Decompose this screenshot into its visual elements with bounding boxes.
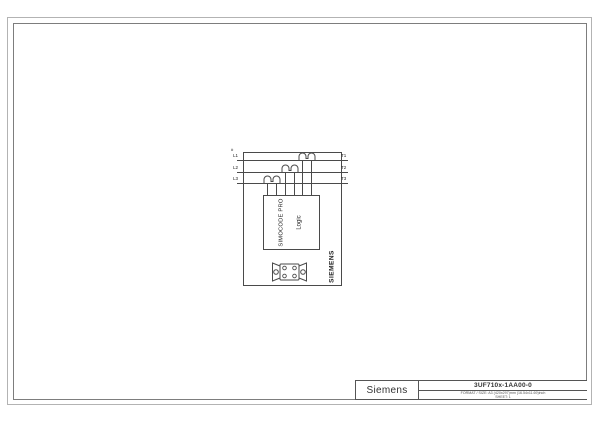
connector-left-screw-icon xyxy=(274,270,279,275)
title-block-manufacturer-cell: Siemens xyxy=(356,381,419,399)
logic-vertical-label: Logic xyxy=(295,211,304,235)
manufacturer-name: Siemens xyxy=(366,385,407,396)
part-number-row: 3UF710x-1AA00-0 xyxy=(419,381,587,391)
title-block: Siemens 3UF710x-1AA00-0 FORMAT / SIZE: A… xyxy=(355,380,587,400)
device-name-vertical-label: SIMOCODE PRO xyxy=(277,198,286,248)
logic-box xyxy=(263,195,320,250)
connector-right-screw-icon xyxy=(301,270,306,275)
sheet-text: SHEET: 1 xyxy=(495,395,511,399)
part-number: 3UF710x-1AA00-0 xyxy=(474,382,532,389)
schematic-page: # L1 L2 L3 T1 T2 T3 SIMOCODE PRO Logic S… xyxy=(0,0,600,425)
ct-loop-l2 xyxy=(282,165,298,172)
ct-loop-l1 xyxy=(299,153,315,160)
brand-vertical-label: SIEMENS xyxy=(328,250,337,284)
connector-body xyxy=(280,264,299,280)
title-block-right-cell: 3UF710x-1AA00-0 FORMAT / SIZE: A3 (420x2… xyxy=(419,381,587,399)
ct-loop-l3 xyxy=(264,176,280,183)
meta-row: FORMAT / SIZE: A3 (420x297)mm (16.54x11.… xyxy=(419,391,587,399)
